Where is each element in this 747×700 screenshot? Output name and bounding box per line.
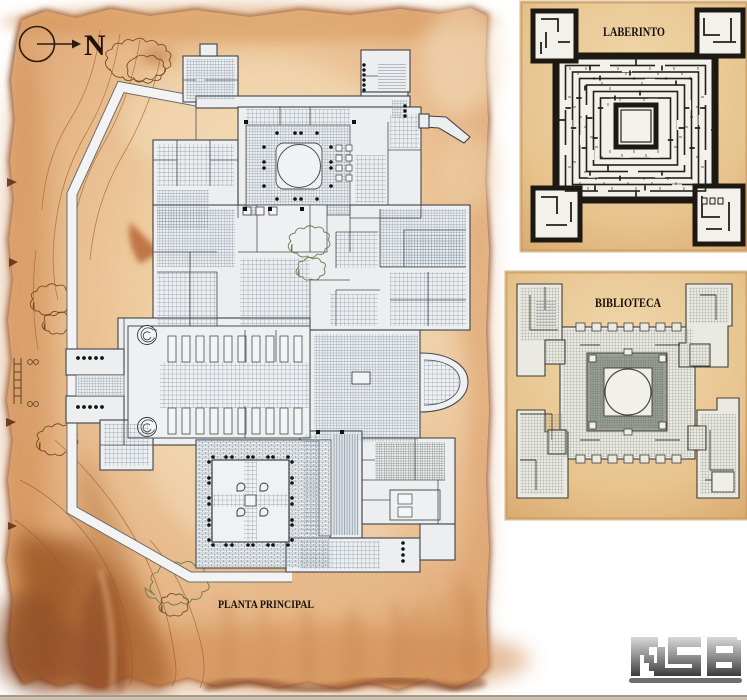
svg-text:N: N	[84, 29, 106, 62]
svg-text:LABERINTO: LABERINTO	[603, 25, 665, 39]
svg-text:PLANTA PRINCIPAL: PLANTA PRINCIPAL	[218, 597, 314, 611]
svg-text:BIBLIOTECA: BIBLIOTECA	[595, 296, 661, 310]
